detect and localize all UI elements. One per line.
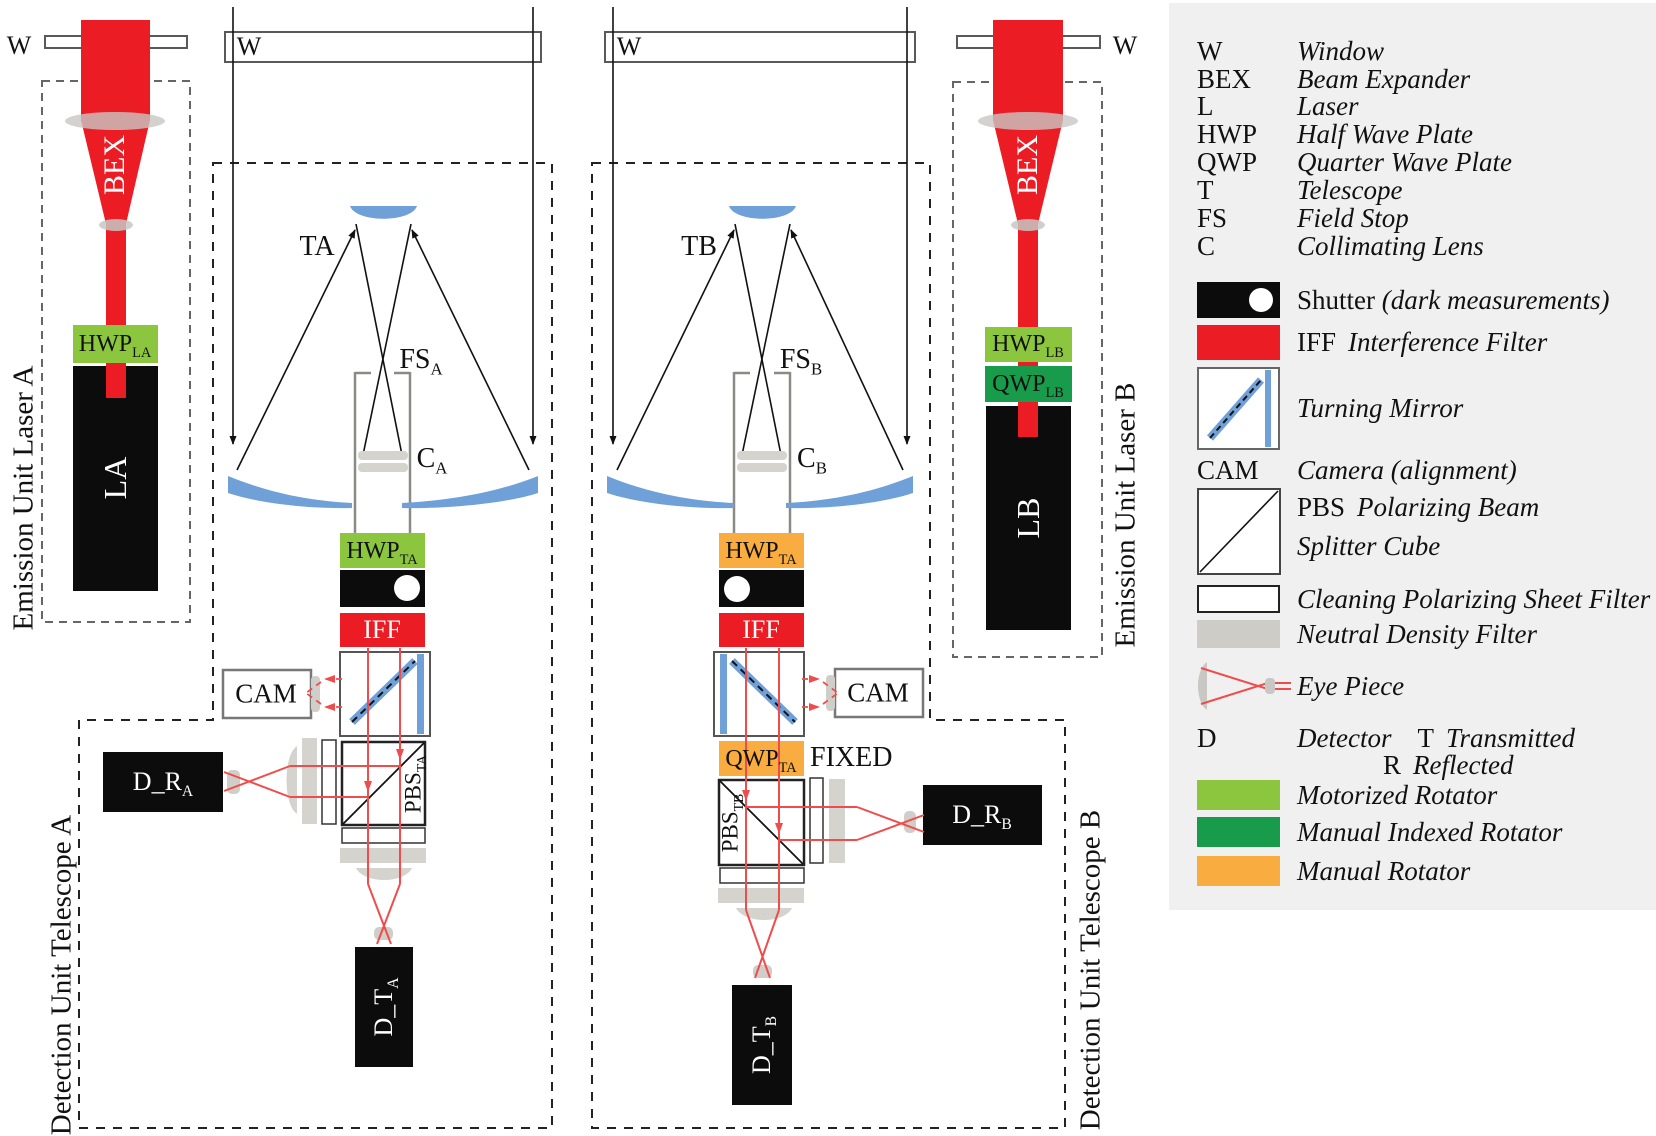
telescope-a-rays — [233, 7, 533, 470]
cleaning-filter-a-bottom — [342, 828, 425, 843]
legend-desc-c: Collimating Lens — [1297, 232, 1484, 260]
relay-lens-a — [287, 746, 298, 814]
legend-motorized-rotator-text: Motorized Rotator — [1297, 781, 1497, 809]
cam-a-label: CAM — [235, 681, 297, 708]
secondary-mirror-a — [350, 206, 417, 219]
emission-unit-a-title: Emission Unit Laser A — [10, 365, 39, 630]
detection-unit-b-title: Detection Unit Telescope B — [1077, 810, 1106, 1130]
detection-unit-a-title: Detection Unit Telescope A — [48, 815, 77, 1135]
cam-b-lens — [826, 675, 835, 711]
legend-cleaning-text: Cleaning Polarizing Sheet Filter — [1297, 585, 1650, 613]
legend-desc-laser: Laser — [1297, 92, 1359, 120]
legend-desc-telescope: Telescope — [1297, 176, 1402, 204]
primary-mirror-b-right — [786, 476, 913, 508]
cam-a-lens — [311, 676, 320, 712]
iff-a-label: IFF — [363, 617, 401, 643]
legend-abbr-bex: BEX — [1197, 65, 1251, 93]
cleaning-filter-b-side — [810, 778, 823, 863]
field-stop-b-label: FSB — [780, 346, 822, 374]
legend-desc-bex: Beam Expander — [1297, 65, 1470, 93]
legend-turning-mirror-text: Turning Mirror — [1297, 394, 1463, 422]
optical-schematic: W W W W BEX BEX HWPLA LA HWPLB QWPLB LB … — [0, 0, 1656, 1136]
nd-filter-a-side — [302, 738, 317, 824]
unit-outlines — [42, 81, 1102, 1128]
nd-filter-b-side — [829, 779, 845, 863]
window-label-telescope-a: W — [237, 34, 262, 60]
iff-swatch-icon — [1197, 325, 1280, 360]
field-stop-a-label: FSA — [399, 346, 442, 374]
bex-a-label: BEX — [100, 135, 130, 195]
detector-transmitted-b-label: D_TB — [749, 1016, 775, 1074]
secondary-mirror-b — [729, 206, 796, 219]
legend-detector-line2: RReflected — [1383, 751, 1513, 779]
collimating-lens-a — [358, 451, 408, 460]
bex-lens-b-large — [978, 112, 1078, 130]
eye-piece-icon — [1193, 660, 1293, 712]
qwp-fixed-note: FIXED — [810, 744, 892, 772]
beam-b-wide — [993, 20, 1063, 121]
legend-abbr-w: W — [1197, 37, 1222, 65]
laser-b-label: LB — [1012, 498, 1044, 539]
qwp-lb-label: QWPLB — [992, 372, 1064, 396]
nd-filter-icon — [1197, 620, 1280, 648]
legend-shutter-text: Shutter (dark measurements) — [1297, 286, 1609, 314]
manual-indexed-rotator-swatch — [1197, 817, 1280, 847]
detector-reflected-a-label: D_RA — [133, 769, 193, 795]
legend-eyepiece-text: Eye Piece — [1297, 672, 1404, 700]
legend-nd-text: Neutral Density Filter — [1297, 620, 1537, 648]
collimator-a-label: CA — [417, 445, 448, 473]
cleaning-filter-b-bottom — [720, 868, 804, 883]
hwp-tb-label: HWPTA — [725, 539, 796, 563]
window-label-emission-a: W — [7, 33, 32, 59]
detection-unit-a-outline — [79, 163, 552, 1128]
collimating-lens-b — [737, 451, 787, 460]
motorized-rotator-swatch — [1197, 780, 1280, 810]
collimator-b-label: CB — [797, 445, 827, 473]
legend-detector-line1: DetectorTTransmitted — [1297, 724, 1575, 752]
legend-abbr-c: C — [1197, 232, 1215, 260]
hwp-ta-label: HWPTA — [346, 539, 417, 563]
qwp-tb-label: QWPTA — [725, 747, 796, 771]
iff-b-label: IFF — [742, 617, 780, 643]
focus-lens-a-bottom — [356, 868, 412, 880]
window-label-emission-b: W — [1113, 33, 1138, 59]
turning-mirror-b-box — [714, 652, 804, 736]
legend-detector-abbr: D — [1197, 724, 1217, 752]
telescope-b-label: TB — [681, 233, 717, 261]
legend-abbr-qwp: QWP — [1197, 148, 1257, 176]
telescope-a-label: TA — [299, 233, 334, 261]
hwp-lb-label: HWPLB — [992, 332, 1064, 356]
cleaning-filter-icon — [1197, 585, 1280, 613]
manual-rotator-swatch — [1197, 856, 1280, 886]
legend-panel: W Window BEX Beam Expander L Laser HWP H… — [1169, 3, 1656, 910]
legend-desc-window: Window — [1297, 37, 1384, 65]
window-telescope-a — [225, 32, 541, 62]
legend-abbr-fs: FS — [1197, 204, 1227, 232]
legend-abbr-t: T — [1197, 176, 1214, 204]
legend-manual-rotator-text: Manual Rotator — [1297, 857, 1470, 885]
cleaning-filter-a-side — [322, 740, 336, 824]
pbs-tb-label: PBSTB — [719, 794, 742, 853]
turning-mirror-icon — [1197, 367, 1280, 450]
shutter-icon — [1197, 282, 1280, 318]
window-label-telescope-b: W — [617, 34, 642, 60]
legend-desc-qwp: Quarter Wave Plate — [1297, 148, 1512, 176]
legend-abbr-l: L — [1197, 92, 1214, 120]
window-telescope-b — [605, 32, 915, 62]
primary-mirror-b-left — [607, 476, 734, 508]
detection-unit-b-outline — [592, 163, 1065, 1128]
legend-iff-text: IFFInterference Filter — [1297, 328, 1547, 356]
windows — [45, 32, 1100, 62]
legend-desc-fs: Field Stop — [1297, 204, 1409, 232]
legend-pbs-line1: PBSPolarizing Beam — [1297, 493, 1539, 521]
detector-reflected-b-label: D_RB — [952, 802, 1012, 828]
focus-lens-b-bottom — [736, 908, 792, 920]
primary-mirror-a-right — [402, 476, 538, 508]
bex-lens-a-large — [65, 112, 165, 130]
emission-unit-a — [65, 20, 165, 591]
beam-a-narrow — [106, 222, 126, 398]
nd-filter-b-bottom — [718, 888, 804, 903]
bex-b-label: BEX — [1013, 135, 1043, 195]
legend-abbr-hwp: HWP — [1197, 120, 1257, 148]
pbs-icon — [1197, 488, 1281, 575]
cam-b-label: CAM — [847, 680, 909, 707]
primary-mirror-a-left — [228, 476, 352, 508]
pbs-ta-label: PBSTA — [402, 755, 425, 813]
detector-transmitted-a-label: D_TA — [371, 978, 397, 1037]
legend-desc-hwp: Half Wave Plate — [1297, 120, 1473, 148]
bex-lens-b-small — [1011, 219, 1045, 231]
emission-unit-b — [978, 20, 1078, 630]
nd-filter-a-bottom — [340, 848, 426, 863]
legend-manual-indexed-rotator-text: Manual Indexed Rotator — [1297, 818, 1562, 846]
legend-cam-abbr: CAM — [1197, 456, 1259, 484]
legend-cam-desc: Camera (alignment) — [1297, 456, 1517, 484]
legend-pbs-line2: Splitter Cube — [1297, 532, 1440, 560]
hwp-la-label: HWPLA — [79, 332, 152, 356]
laser-a-label: LA — [99, 457, 131, 500]
bex-lens-a-small — [99, 219, 133, 231]
telescope-b-rays — [613, 7, 907, 470]
beam-a-wide — [81, 20, 150, 121]
emission-unit-b-title: Emission Unit Laser B — [1112, 382, 1141, 647]
